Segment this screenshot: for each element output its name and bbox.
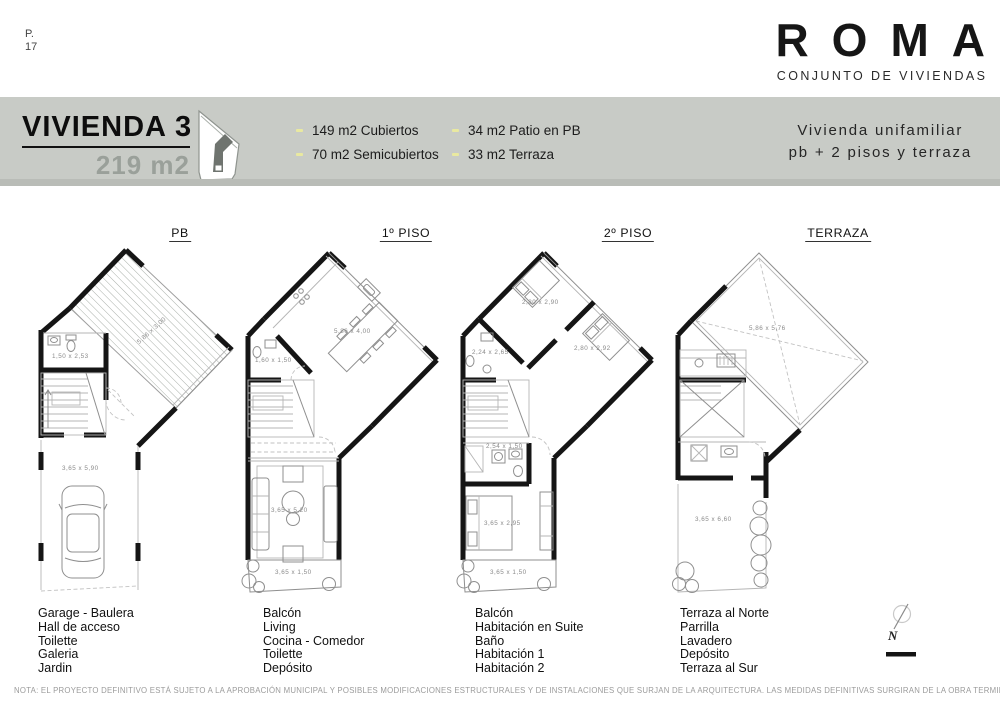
- band-divider: [0, 179, 1000, 186]
- dim-label: 1,60 x 1,50: [255, 357, 292, 364]
- room-item: Jardin: [38, 662, 134, 676]
- dim-label: 3,65 x 6,60: [695, 516, 732, 523]
- t-parrilla: [680, 350, 746, 376]
- dim-label: 2,24 x 2,65: [472, 349, 509, 356]
- floor-plan-terraza: 5,86 x 5,76: [671, 240, 883, 605]
- room-item: Cocina - Comedor: [263, 635, 364, 649]
- bullet-icon: [296, 153, 303, 156]
- t-south-terrace: 3,65 x 6,60: [673, 484, 772, 593]
- unit-total-area: 219 m2: [22, 150, 190, 181]
- dim-label: 1,50 x 2,53: [52, 353, 89, 360]
- room-item: Depósito: [263, 662, 364, 676]
- room-list-pb: Garage - Baulera Hall de acceso Toilette…: [38, 607, 134, 676]
- room-item: Balcón: [475, 607, 583, 621]
- room-list-piso2: Balcón Habitación en Suite Baño Habitaci…: [475, 607, 583, 676]
- room-list-piso1: Balcón Living Cocina - Comedor Toilette …: [263, 607, 364, 676]
- floor-plan-pb: 5,86 x 3,00 1,50 x 2,53: [26, 240, 238, 605]
- dim-label: 2,80 x 2,92: [574, 345, 611, 352]
- floor-plan-piso1: 5,86 x 4,00 1,60 x 1,50: [241, 240, 453, 605]
- dim-label: 2,54 x 1,50: [486, 443, 523, 450]
- north-label: N: [887, 628, 898, 643]
- housing-type-line2: pb + 2 pisos y terraza: [789, 142, 972, 164]
- t-stairwell: [680, 380, 744, 437]
- t-lavadero: [678, 442, 766, 461]
- brand-subtitle: CONJUNTO DE VIVIENDAS: [775, 69, 987, 83]
- room-item: Garage - Baulera: [38, 607, 134, 621]
- p2-suite: 3,65 x 2,95: [466, 492, 553, 550]
- north-compass-icon: N: [880, 602, 930, 664]
- spec-item: 34 m2 Patio en PB: [452, 123, 581, 138]
- page-number: P. 17: [25, 28, 37, 53]
- unit-locator-icon: [193, 106, 243, 184]
- room-item: Balcón: [263, 607, 364, 621]
- dim-label: 5,86 x 4,00: [334, 328, 371, 335]
- spec-item: 33 m2 Terraza: [452, 147, 581, 162]
- dim-label: 2,80 x 2,90: [522, 299, 559, 306]
- floor-plan-piso2: 2,80 x 2,90 2,80 x 2,92 2,24 x 2,65: [456, 240, 668, 605]
- p2-bedroom2: 2,80 x 2,92: [574, 314, 629, 361]
- car-icon: [59, 486, 107, 578]
- spec-label: 70 m2 Semicubiertos: [312, 147, 439, 162]
- bullet-icon: [452, 129, 459, 132]
- dim-label: 3,65 x 2,95: [484, 520, 521, 527]
- room-item: Terraza al Sur: [680, 662, 769, 676]
- dining-table-icon: [324, 298, 402, 376]
- brochure-page: P. 17 ROMA CONJUNTO DE VIVIENDAS VIVIEND…: [0, 0, 1000, 707]
- page-code-label: P.: [25, 28, 37, 41]
- room-item: Habitación 1: [475, 648, 583, 662]
- room-item: Baño: [475, 635, 583, 649]
- room-item: Depósito: [680, 648, 769, 662]
- room-list-terraza: Terraza al Norte Parrilla Lavadero Depós…: [680, 607, 769, 676]
- page-number-value: 17: [25, 41, 37, 54]
- spec-label: 149 m2 Cubiertos: [312, 123, 419, 138]
- sink-icon: [358, 279, 381, 302]
- room-item: Habitación 2: [475, 662, 583, 676]
- p1-living: 3,65 x 5,20: [252, 466, 337, 562]
- spec-label: 34 m2 Patio en PB: [468, 123, 581, 138]
- room-item: Living: [263, 621, 364, 635]
- bullet-icon: [452, 153, 459, 156]
- dim-label: 5,86 x 5,76: [749, 325, 786, 332]
- spec-label: 33 m2 Terraza: [468, 147, 554, 162]
- p1-kitchen: 5,86 x 4,00: [273, 262, 402, 376]
- room-item: Hall de acceso: [38, 621, 134, 635]
- pb-staircase: [41, 373, 106, 435]
- room-item: Toilette: [263, 648, 364, 662]
- room-item: Terraza al Norte: [680, 607, 769, 621]
- housing-type-line1: Vivienda unifamiliar: [789, 120, 972, 142]
- unit-title: VIVIENDA 3: [22, 111, 190, 148]
- p2-staircase: [463, 380, 529, 437]
- room-item: Parrilla: [680, 621, 769, 635]
- spec-item: 149 m2 Cubiertos: [296, 123, 439, 138]
- room-item: Galeria: [38, 648, 134, 662]
- pb-patio-hatched: 5,86 x 3,00: [70, 250, 232, 408]
- area-specs-col2: 34 m2 Patio en PB 33 m2 Terraza: [452, 123, 581, 171]
- dim-label: 3,65 x 5,20: [271, 507, 308, 514]
- bullet-icon: [296, 129, 303, 132]
- header-band: VIVIENDA 3 219 m2 149 m2 Cubiertos 70 m2…: [0, 97, 1000, 186]
- p1-staircase: [248, 380, 314, 437]
- scale-bar: [886, 652, 916, 657]
- dim-label: 3,65 x 1,50: [275, 569, 312, 576]
- dim-label: 3,65 x 5,90: [62, 465, 99, 472]
- p1-balcony: 3,65 x 1,50: [242, 560, 341, 593]
- room-item: Habitación en Suite: [475, 621, 583, 635]
- area-specs-col1: 149 m2 Cubiertos 70 m2 Semicubiertos: [296, 123, 439, 171]
- legal-note: NOTA: EL PROYECTO DEFINITIVO ESTÁ SUJETO…: [14, 686, 1000, 695]
- spec-item: 70 m2 Semicubiertos: [296, 147, 439, 162]
- pb-galeria: [106, 390, 134, 420]
- pb-garage: 3,65 x 5,90: [41, 440, 138, 591]
- housing-type: Vivienda unifamiliar pb + 2 pisos y terr…: [789, 120, 972, 164]
- brand-block: ROMA CONJUNTO DE VIVIENDAS: [775, 18, 985, 83]
- room-item: Lavadero: [680, 635, 769, 649]
- p2-suite-bath: 2,54 x 1,50: [463, 437, 550, 477]
- dim-label: 3,65 x 1,50: [490, 569, 527, 576]
- room-item: Toilette: [38, 635, 134, 649]
- unit-title-block: VIVIENDA 3 219 m2: [22, 111, 190, 181]
- p1-deposito: [248, 437, 339, 461]
- brand-logo: ROMA: [775, 18, 1000, 62]
- p2-balcony: 3,65 x 1,50: [457, 560, 556, 593]
